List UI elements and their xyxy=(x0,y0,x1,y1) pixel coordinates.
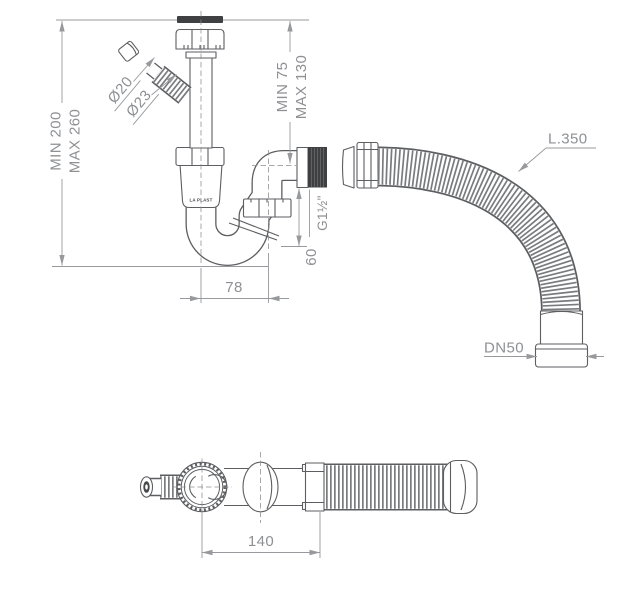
drawing-canvas: LA PLAST xyxy=(0,0,635,600)
flexible-hose xyxy=(378,167,561,314)
dim-tail-min: MIN 75 xyxy=(274,62,291,113)
upper-view: LA PLAST xyxy=(48,11,605,367)
union-nut xyxy=(357,143,378,189)
dimensions-bottom: 140 xyxy=(202,512,320,558)
end-fitting-plan xyxy=(444,461,478,514)
cup-nut xyxy=(176,148,224,166)
hose-end-fitting xyxy=(536,311,588,367)
dim-60: 60 xyxy=(303,248,320,266)
bottom-view: 140 xyxy=(141,452,478,558)
dim-hose-length: L.350 xyxy=(548,131,588,148)
hose-nut-plan xyxy=(303,463,325,511)
dim-height-min: MIN 200 xyxy=(48,111,65,171)
branch-cap xyxy=(118,40,140,62)
cone-washer xyxy=(343,147,355,189)
outlet-nut xyxy=(244,199,292,217)
dim-thread-size: G1½" xyxy=(315,195,330,231)
sink-nut xyxy=(176,30,224,50)
dim-78: 78 xyxy=(225,279,243,296)
dim-height-max: MAX 260 xyxy=(67,109,84,174)
sink-gasket xyxy=(177,16,223,23)
dim-outlet-size: DN50 xyxy=(484,340,524,357)
siphon-technical-drawing: LA PLAST xyxy=(0,0,635,600)
dim-140: 140 xyxy=(248,533,274,550)
outlet-thread xyxy=(308,147,327,188)
outlet-shoulder xyxy=(297,148,308,188)
dim-tail-max: MAX 130 xyxy=(293,55,310,120)
